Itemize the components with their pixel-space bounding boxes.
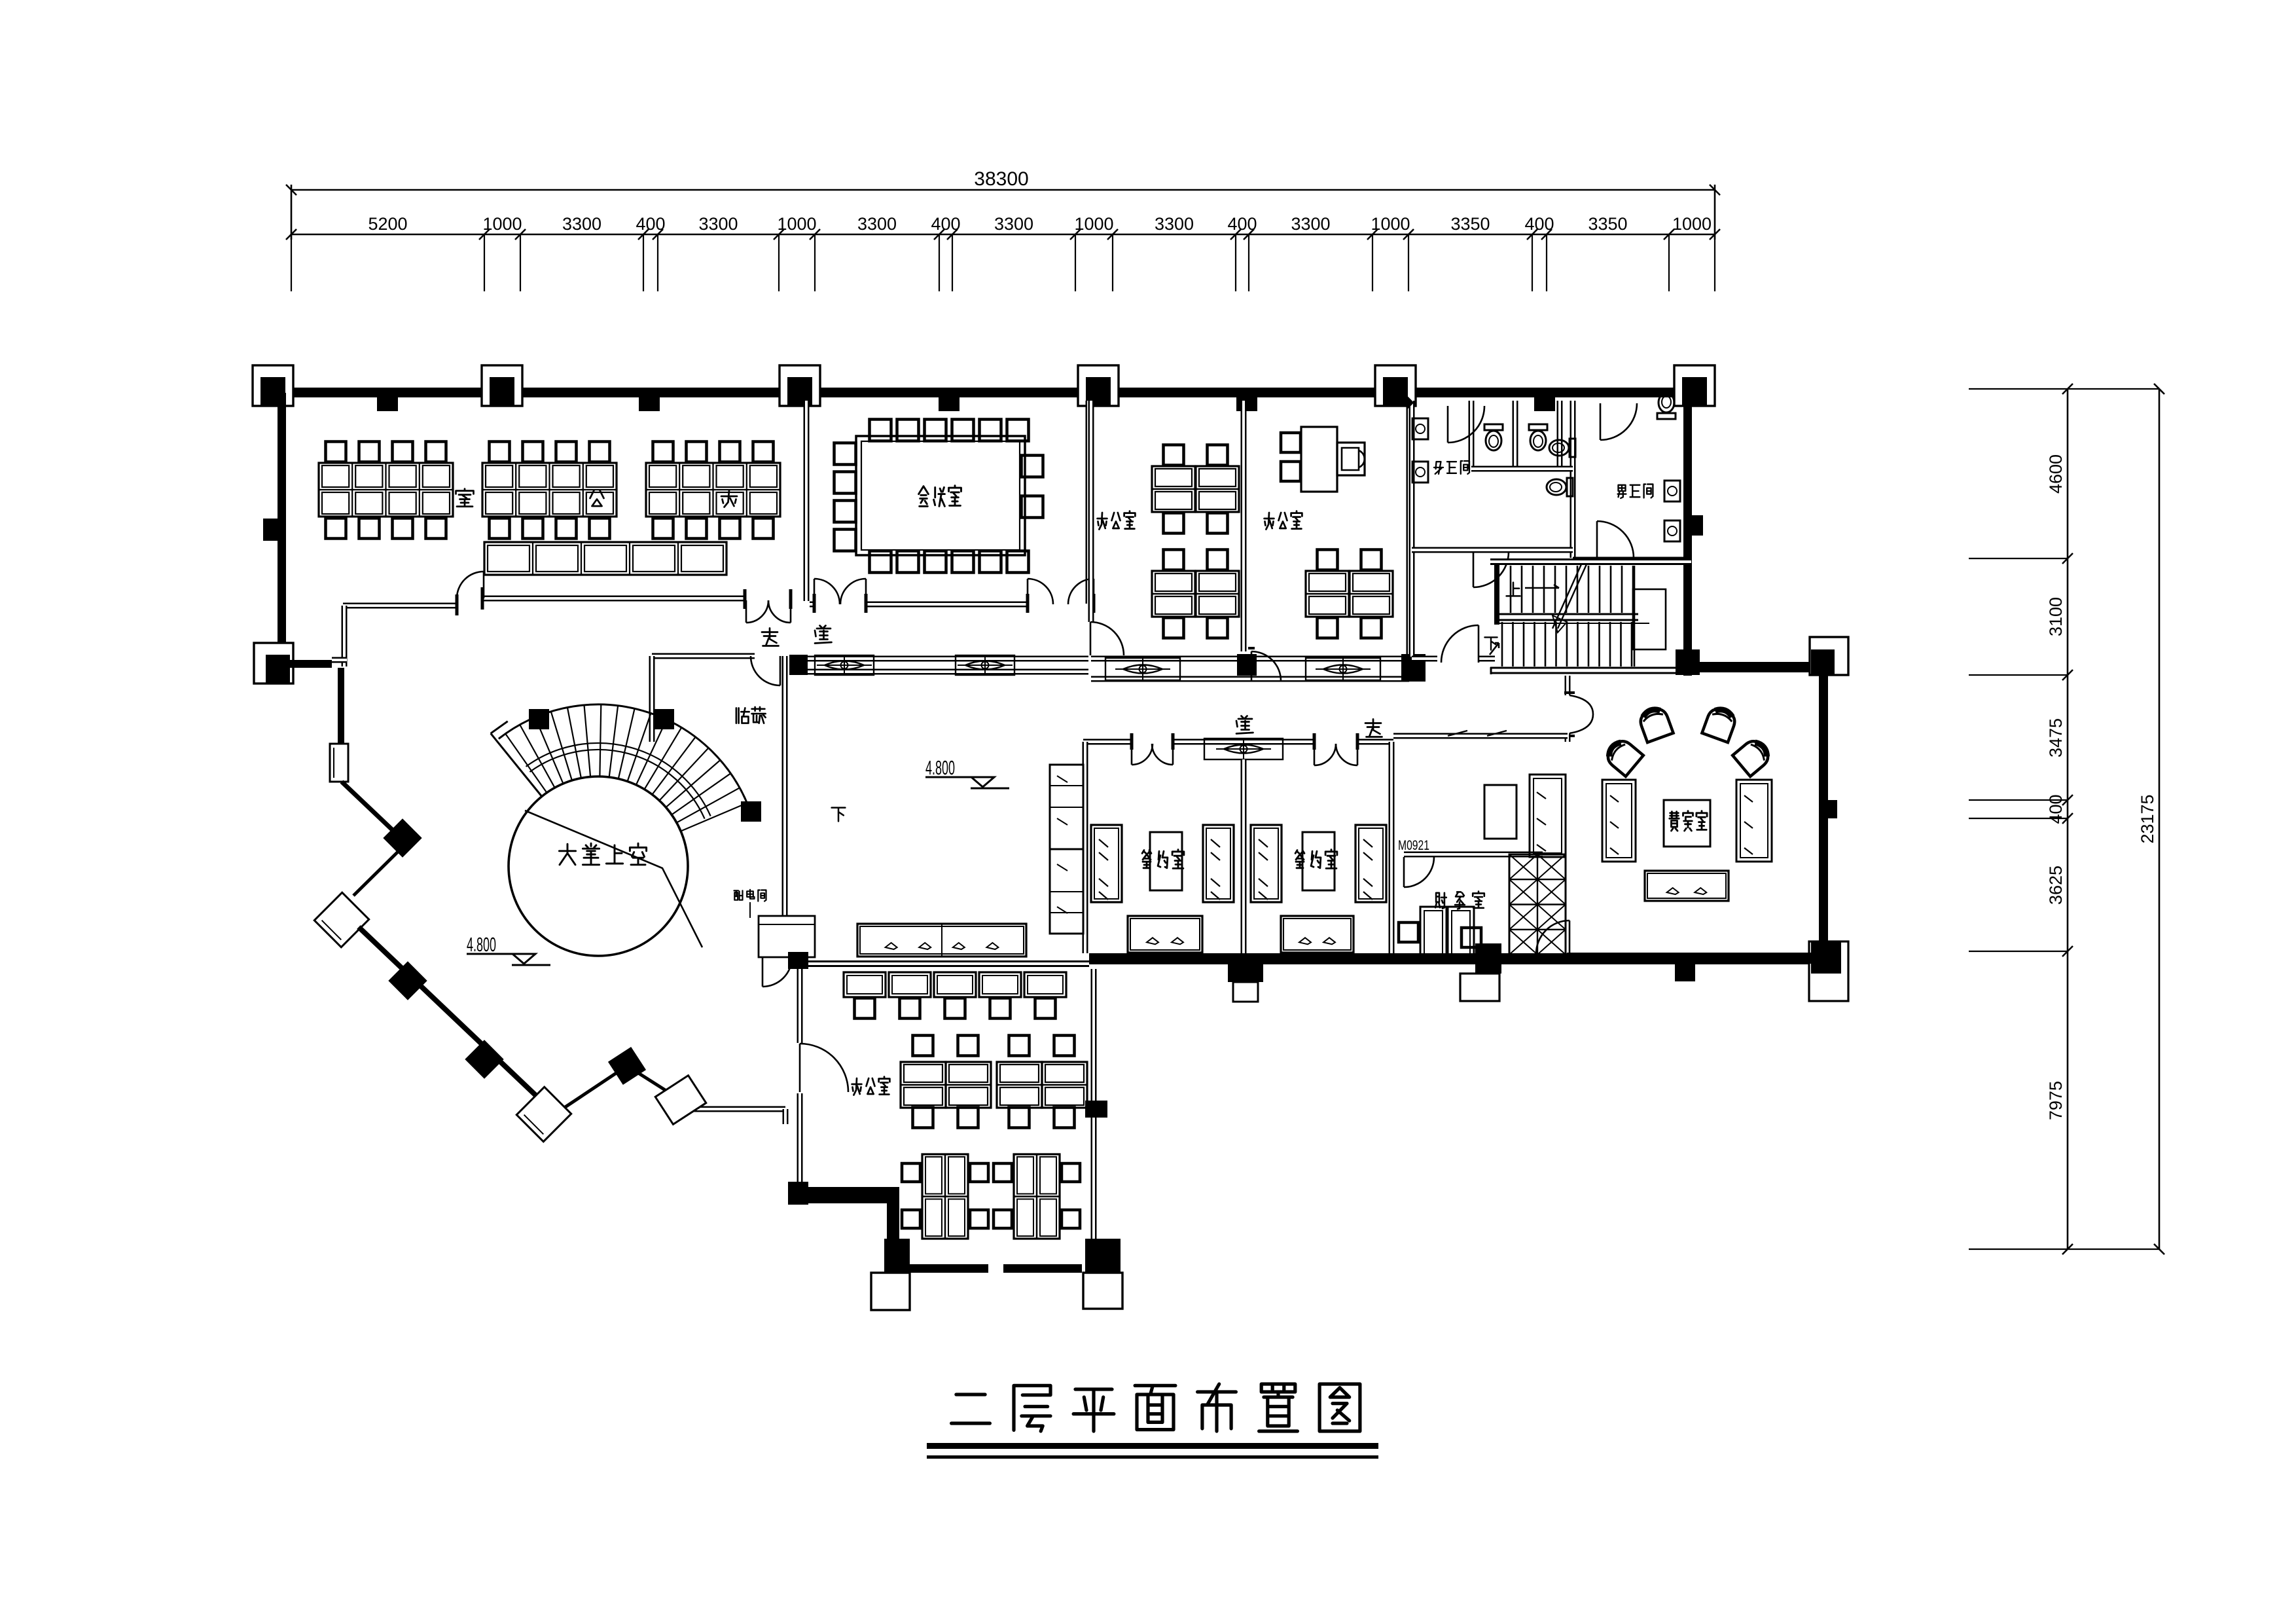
svg-text:3475: 3475 bbox=[2046, 718, 2066, 757]
svg-text:1000: 1000 bbox=[1371, 214, 1410, 234]
svg-text:3350: 3350 bbox=[1450, 214, 1490, 234]
svg-text:M0921: M0921 bbox=[1398, 838, 1429, 853]
svg-text:23175: 23175 bbox=[2138, 794, 2157, 843]
svg-text:400: 400 bbox=[636, 214, 665, 234]
svg-text:4.800: 4.800 bbox=[467, 933, 496, 956]
svg-text:4.800: 4.800 bbox=[925, 756, 955, 779]
svg-text:400: 400 bbox=[931, 214, 960, 234]
svg-text:3300: 3300 bbox=[1155, 214, 1194, 234]
svg-text:1000: 1000 bbox=[1672, 214, 1712, 234]
svg-text:3625: 3625 bbox=[2046, 866, 2066, 905]
svg-text:400: 400 bbox=[1227, 214, 1257, 234]
svg-text:1000: 1000 bbox=[1074, 214, 1113, 234]
svg-text:3300: 3300 bbox=[562, 214, 601, 234]
svg-text:3350: 3350 bbox=[1588, 214, 1627, 234]
svg-text:3100: 3100 bbox=[2046, 597, 2066, 636]
svg-text:3300: 3300 bbox=[857, 214, 897, 234]
svg-text:400: 400 bbox=[1524, 214, 1554, 234]
svg-text:1000: 1000 bbox=[777, 214, 816, 234]
svg-text:400: 400 bbox=[2046, 794, 2066, 824]
svg-text:3300: 3300 bbox=[994, 214, 1033, 234]
svg-text:7975: 7975 bbox=[2046, 1081, 2066, 1120]
svg-text:5200: 5200 bbox=[368, 214, 407, 234]
svg-text:3300: 3300 bbox=[1291, 214, 1330, 234]
svg-text:4600: 4600 bbox=[2046, 454, 2066, 494]
svg-text:38300: 38300 bbox=[974, 168, 1028, 190]
svg-text:1000: 1000 bbox=[482, 214, 522, 234]
svg-text:3300: 3300 bbox=[698, 214, 738, 234]
